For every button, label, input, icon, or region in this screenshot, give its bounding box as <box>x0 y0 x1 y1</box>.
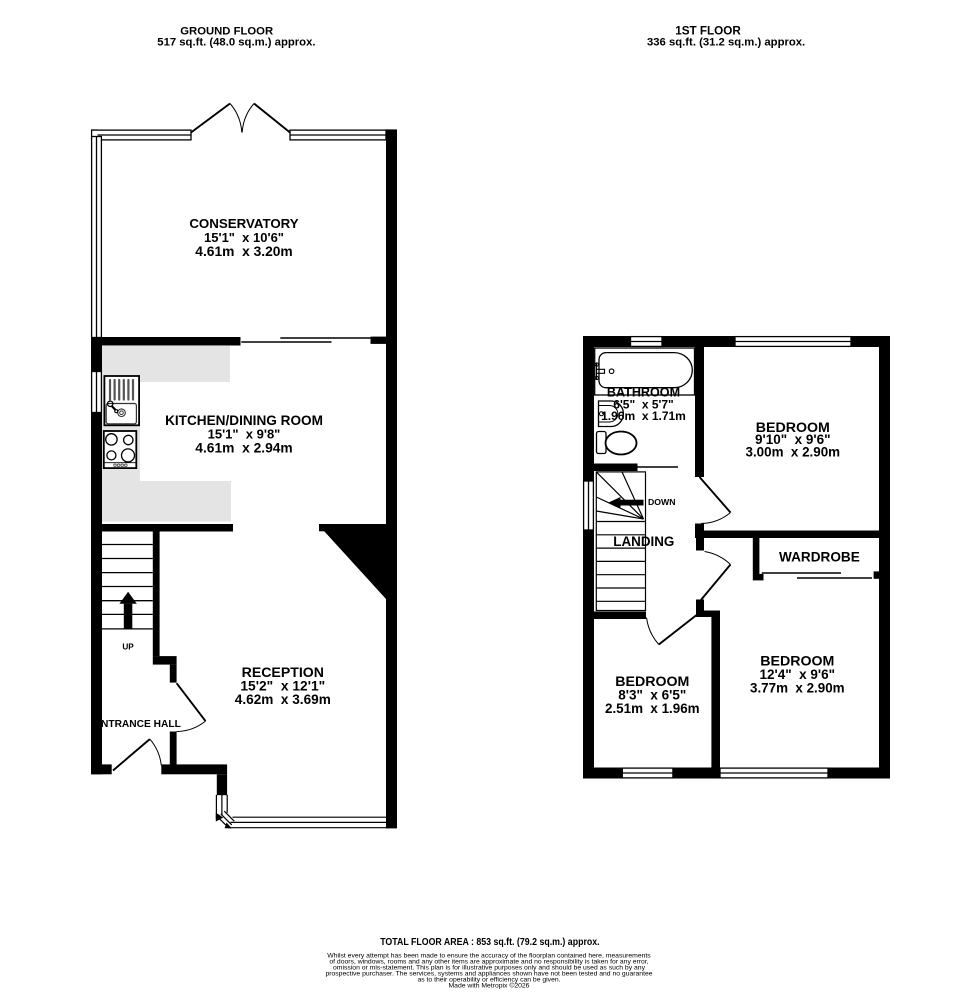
svg-text:CONSERVATORY: CONSERVATORY <box>189 216 298 231</box>
svg-text:15'2" x 12'1": 15'2" x 12'1" <box>240 678 325 693</box>
svg-text:517 sq.ft. (48.0 sq.m.) approx: 517 sq.ft. (48.0 sq.m.) approx. <box>157 36 315 48</box>
svg-text:UP: UP <box>122 642 134 651</box>
svg-text:KITCHEN/DINING ROOM: KITCHEN/DINING ROOM <box>165 413 323 428</box>
svg-text:1.96m x 1.71m: 1.96m x 1.71m <box>601 409 686 423</box>
svg-text:15'1" x 10'6": 15'1" x 10'6" <box>204 230 284 245</box>
svg-text:4.62m x 3.69m: 4.62m x 3.69m <box>235 692 331 707</box>
svg-text:ENTRANCE HALL: ENTRANCE HALL <box>94 719 181 730</box>
svg-text:DOWN: DOWN <box>648 497 676 507</box>
svg-text:LANDING: LANDING <box>613 534 674 549</box>
svg-text:15'1" x 9'8": 15'1" x 9'8" <box>208 427 281 442</box>
svg-text:3.77m x 2.90m: 3.77m x 2.90m <box>750 681 845 696</box>
svg-text:4.61m x 3.20m: 4.61m x 3.20m <box>195 244 292 259</box>
svg-text:3.00m x 2.90m: 3.00m x 2.90m <box>746 445 841 460</box>
svg-text:TOTAL FLOOR AREA : 853 sq.ft.: TOTAL FLOOR AREA : 853 sq.ft. (79.2 sq.m… <box>380 937 600 948</box>
svg-text:WARDROBE: WARDROBE <box>779 550 860 565</box>
svg-text:2.51m x 1.96m: 2.51m x 1.96m <box>605 701 700 716</box>
svg-text:336 sq.ft. (31.2 sq.m.) approx: 336 sq.ft. (31.2 sq.m.) approx. <box>647 36 805 48</box>
svg-text:4.61m x 2.94m: 4.61m x 2.94m <box>195 441 292 456</box>
svg-text:Made with Metropix ©2026: Made with Metropix ©2026 <box>449 982 530 990</box>
